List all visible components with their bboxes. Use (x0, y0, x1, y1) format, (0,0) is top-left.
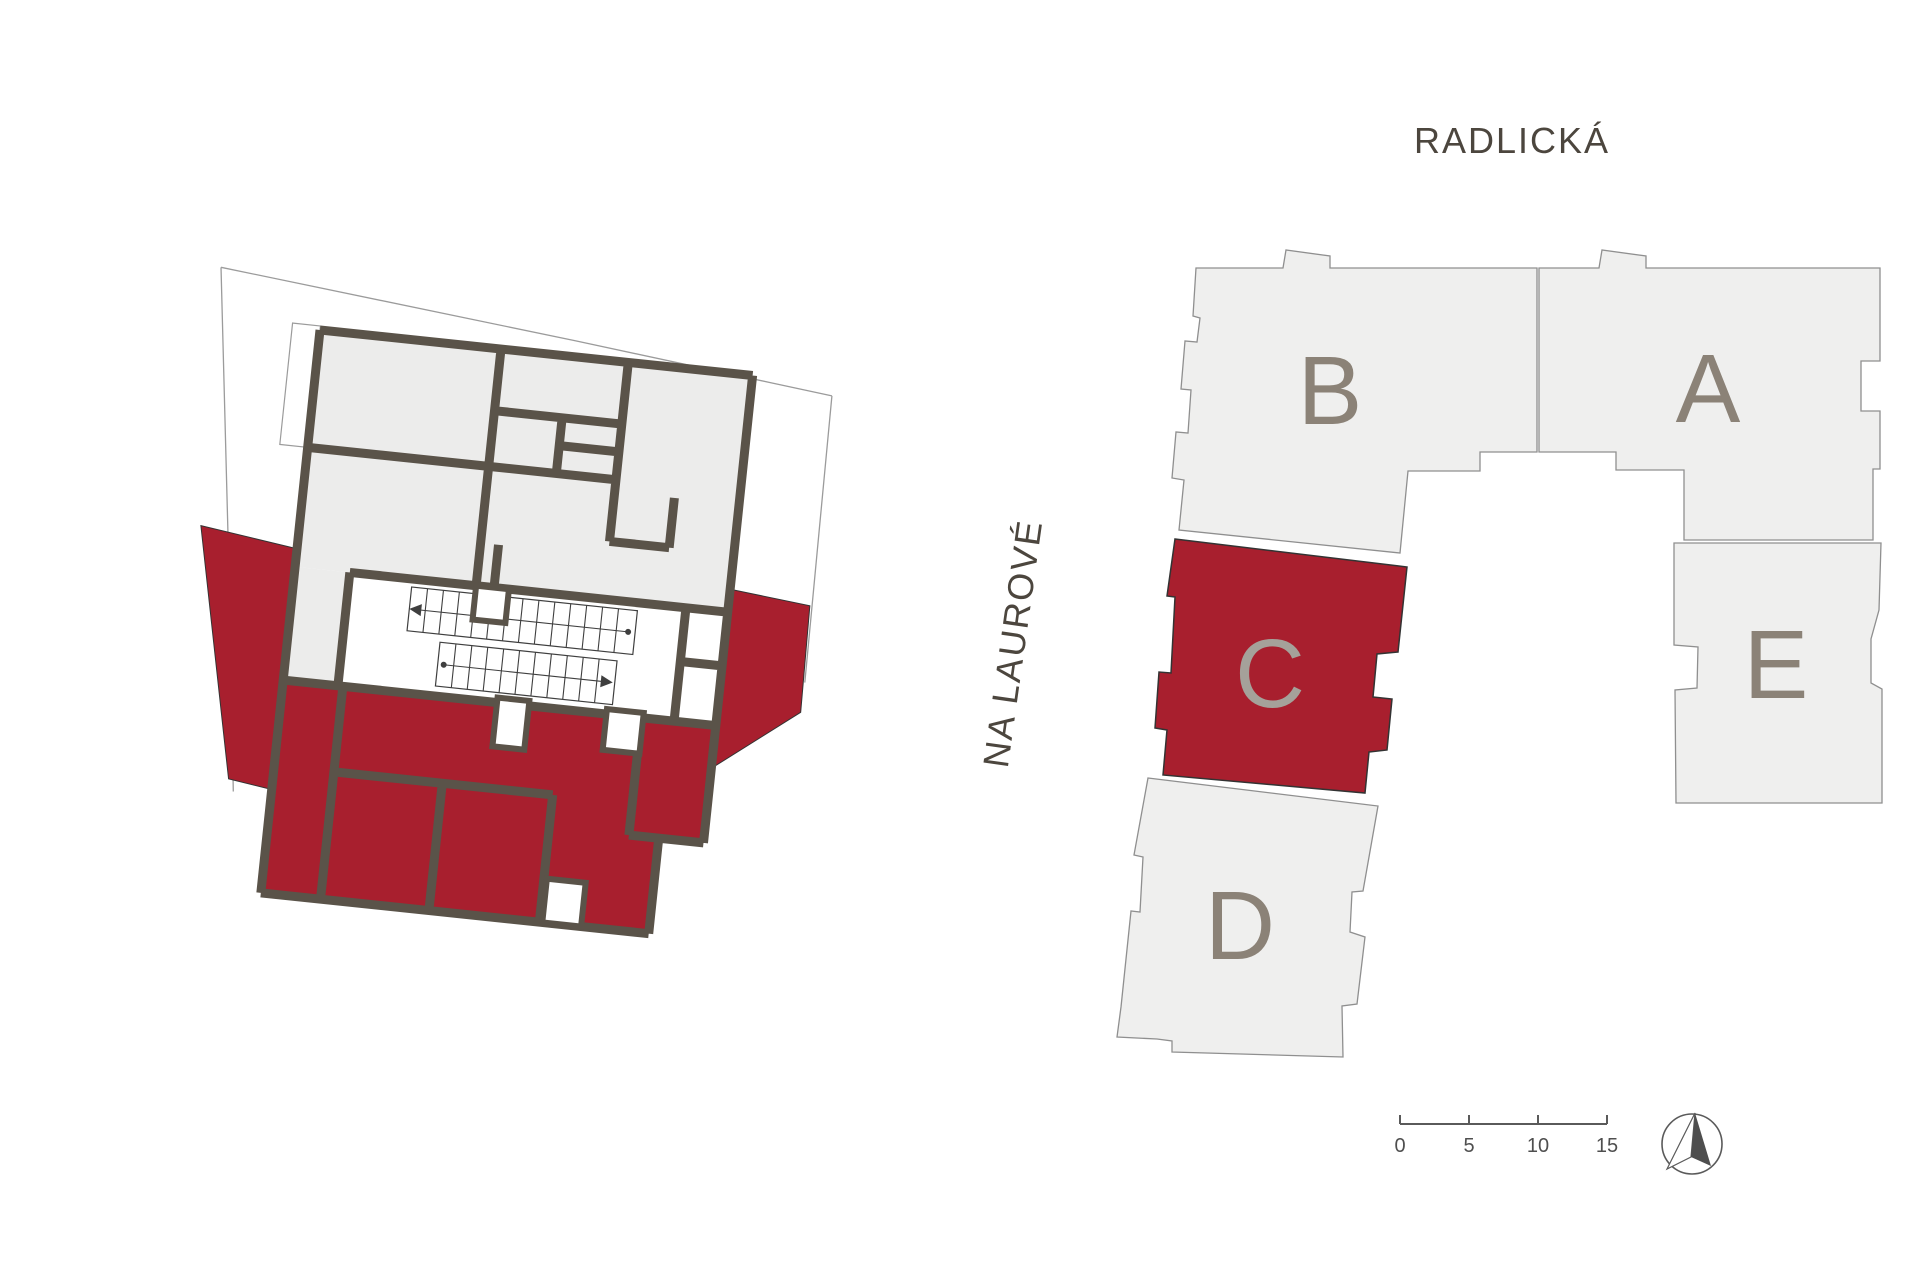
plan-cutout (492, 698, 529, 750)
scale-tick-5: 5 (1463, 1135, 1474, 1157)
scale-tick-15: 15 (1596, 1135, 1618, 1157)
building-label-c: C (1235, 619, 1305, 728)
scale-tick-0: 0 (1394, 1135, 1405, 1157)
plan-shaft (473, 586, 509, 623)
plan-cutout (603, 709, 644, 754)
street-label-na-laurove: NA LAUROVÉ (975, 517, 1050, 770)
building-label-d: D (1205, 871, 1275, 980)
page: B A C E D RADLICKÁ NA LAUROVÉ 0 5 10 15 (0, 0, 1912, 1280)
building-label-b: B (1298, 336, 1363, 445)
street-label-radlicka: RADLICKÁ (1414, 120, 1610, 161)
floor-plan (156, 267, 841, 947)
scale-bar: 0 5 10 15 (1394, 1115, 1618, 1157)
building-label-e: E (1744, 610, 1809, 719)
scale-tick-10: 10 (1527, 1135, 1549, 1157)
building-label-a: A (1676, 334, 1741, 443)
site-plan: B A C E D RADLICKÁ NA LAUROVÉ 0 5 10 15 (975, 120, 1882, 1174)
plan-cutout (542, 879, 585, 927)
plan-stairs (402, 587, 638, 706)
north-arrow-icon (1662, 1113, 1722, 1174)
